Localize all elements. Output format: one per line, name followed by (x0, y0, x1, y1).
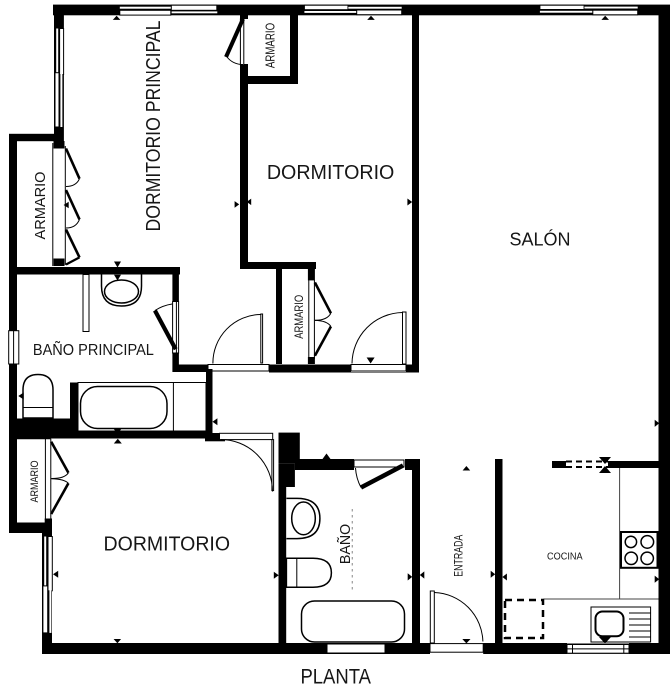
svg-text:ARMARIO: ARMARIO (262, 23, 277, 68)
svg-text:DORMITORIO: DORMITORIO (267, 162, 395, 184)
svg-text:BAÑO PRINCIPAL: BAÑO PRINCIPAL (33, 339, 154, 359)
svg-text:ARMARIO: ARMARIO (292, 295, 306, 339)
svg-text:SALÓN: SALÓN (510, 229, 571, 250)
svg-text:DORMITORIO: DORMITORIO (104, 534, 231, 556)
svg-text:COCINA: COCINA (547, 552, 583, 563)
svg-text:DORMITORIO PRINCIPAL: DORMITORIO PRINCIPAL (143, 21, 165, 232)
svg-text:PLANTA: PLANTA (300, 666, 371, 688)
svg-text:ARMARIO: ARMARIO (29, 460, 41, 502)
svg-text:ARMARIO: ARMARIO (33, 172, 49, 240)
svg-text:BAÑO: BAÑO (337, 524, 354, 564)
svg-text:ENTRADA: ENTRADA (452, 534, 466, 577)
